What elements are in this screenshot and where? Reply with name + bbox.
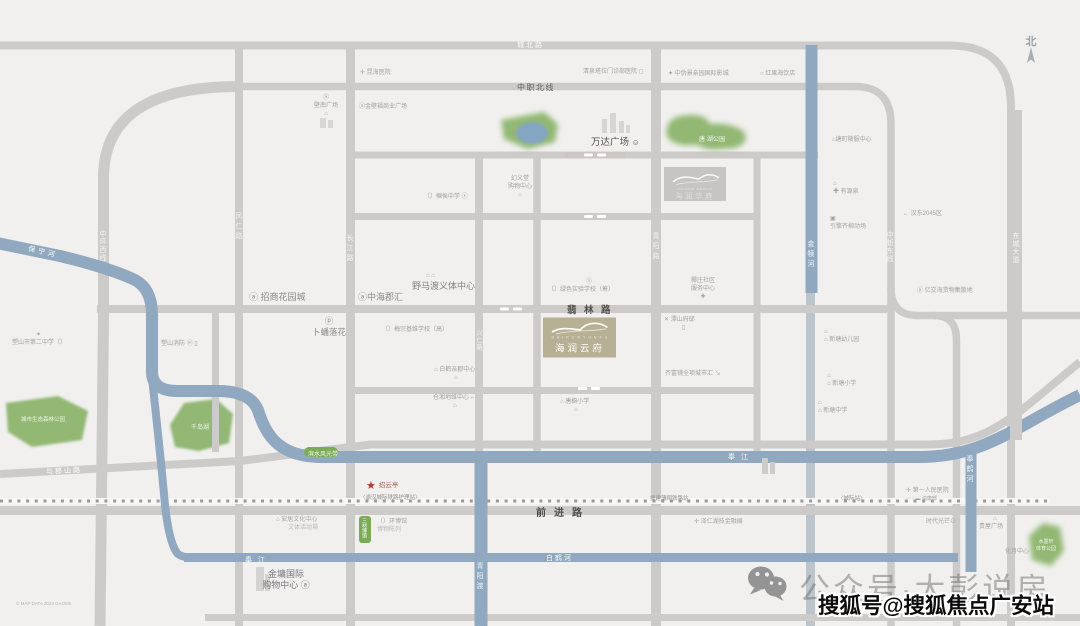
svg-text:城市生态森林公园: 城市生态森林公园 [21,415,66,423]
svg-text:海润华庭: 海润华庭 [675,191,715,201]
svg-text:唐·湖公园: 唐·湖公园 [699,135,725,143]
svg-text:H A I R U N Y U N F U: H A I R U N Y U N F U [552,336,609,340]
svg-text:海润云府: 海润云府 [555,343,605,355]
svg-text:HAIRUN GROUP: HAIRUN GROUP [677,187,712,191]
svg-text:千岛湖: 千岛湖 [191,423,209,431]
svg-text:北: 北 [1026,34,1037,48]
